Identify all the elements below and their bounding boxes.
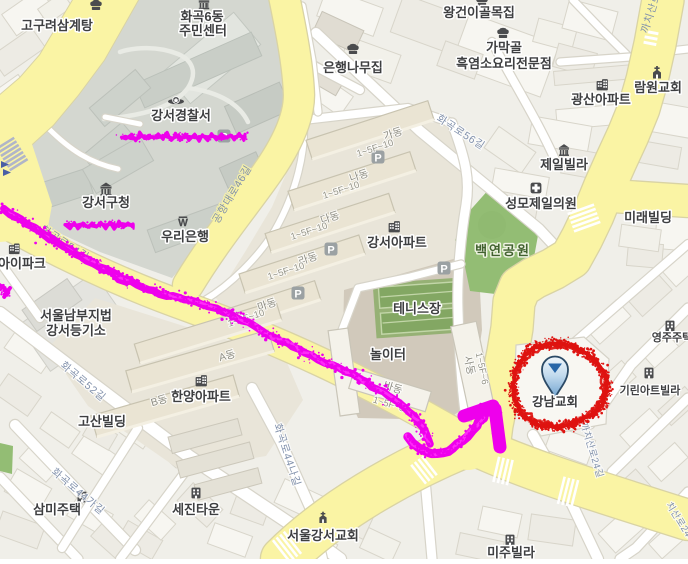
svg-text:테니스장: 테니스장 [393, 301, 441, 316]
svg-text:강서구청: 강서구청 [82, 195, 130, 210]
svg-text:주민센터: 주민센터 [179, 23, 227, 38]
svg-text:강남교회: 강남교회 [532, 394, 578, 409]
svg-text:강서등기소: 강서등기소 [46, 323, 106, 338]
svg-text:왕건이골목집: 왕건이골목집 [443, 5, 515, 20]
svg-text:람원교회: 람원교회 [634, 80, 682, 95]
svg-text:서울강서교회: 서울강서교회 [287, 528, 359, 543]
svg-text:백연공원: 백연공원 [475, 243, 531, 258]
svg-text:우리은행: 우리은행 [161, 229, 209, 244]
svg-text:한양아파트: 한양아파트 [171, 389, 231, 404]
svg-text:은행나무집: 은행나무집 [323, 60, 383, 75]
svg-text:P: P [374, 153, 381, 165]
svg-text:고구려삼계탕: 고구려삼계탕 [21, 18, 93, 33]
svg-text:삼미주택: 삼미주택 [33, 502, 81, 517]
svg-text:놀이터: 놀이터 [370, 347, 406, 362]
svg-text:P: P [440, 264, 447, 276]
svg-text:세진타운: 세진타운 [172, 502, 220, 517]
svg-text:강서아파트: 강서아파트 [367, 235, 427, 250]
svg-text:제일빌라: 제일빌라 [540, 157, 588, 172]
svg-text:서아이파크: 서아이파크 [0, 256, 46, 271]
svg-text:P: P [294, 289, 301, 301]
svg-text:영주주택: 영주주택 [652, 330, 688, 344]
svg-text:화곡6동: 화곡6동 [180, 9, 223, 24]
svg-text:기린아트빌라: 기린아트빌라 [620, 383, 682, 397]
svg-text:P: P [327, 245, 334, 257]
svg-text:광산아파트: 광산아파트 [571, 92, 631, 107]
svg-text:고산빌딩: 고산빌딩 [78, 414, 126, 429]
svg-text:서울남부지법: 서울남부지법 [40, 308, 112, 323]
svg-text:강서경찰서: 강서경찰서 [151, 108, 211, 123]
svg-text:흑염소요리전문점: 흑염소요리전문점 [456, 56, 552, 71]
svg-text:성모제일의원: 성모제일의원 [505, 196, 577, 211]
svg-text:가막골: 가막골 [486, 40, 522, 55]
svg-text:미주빌라: 미주빌라 [487, 545, 535, 559]
svg-text:미래빌딩: 미래빌딩 [624, 210, 672, 225]
